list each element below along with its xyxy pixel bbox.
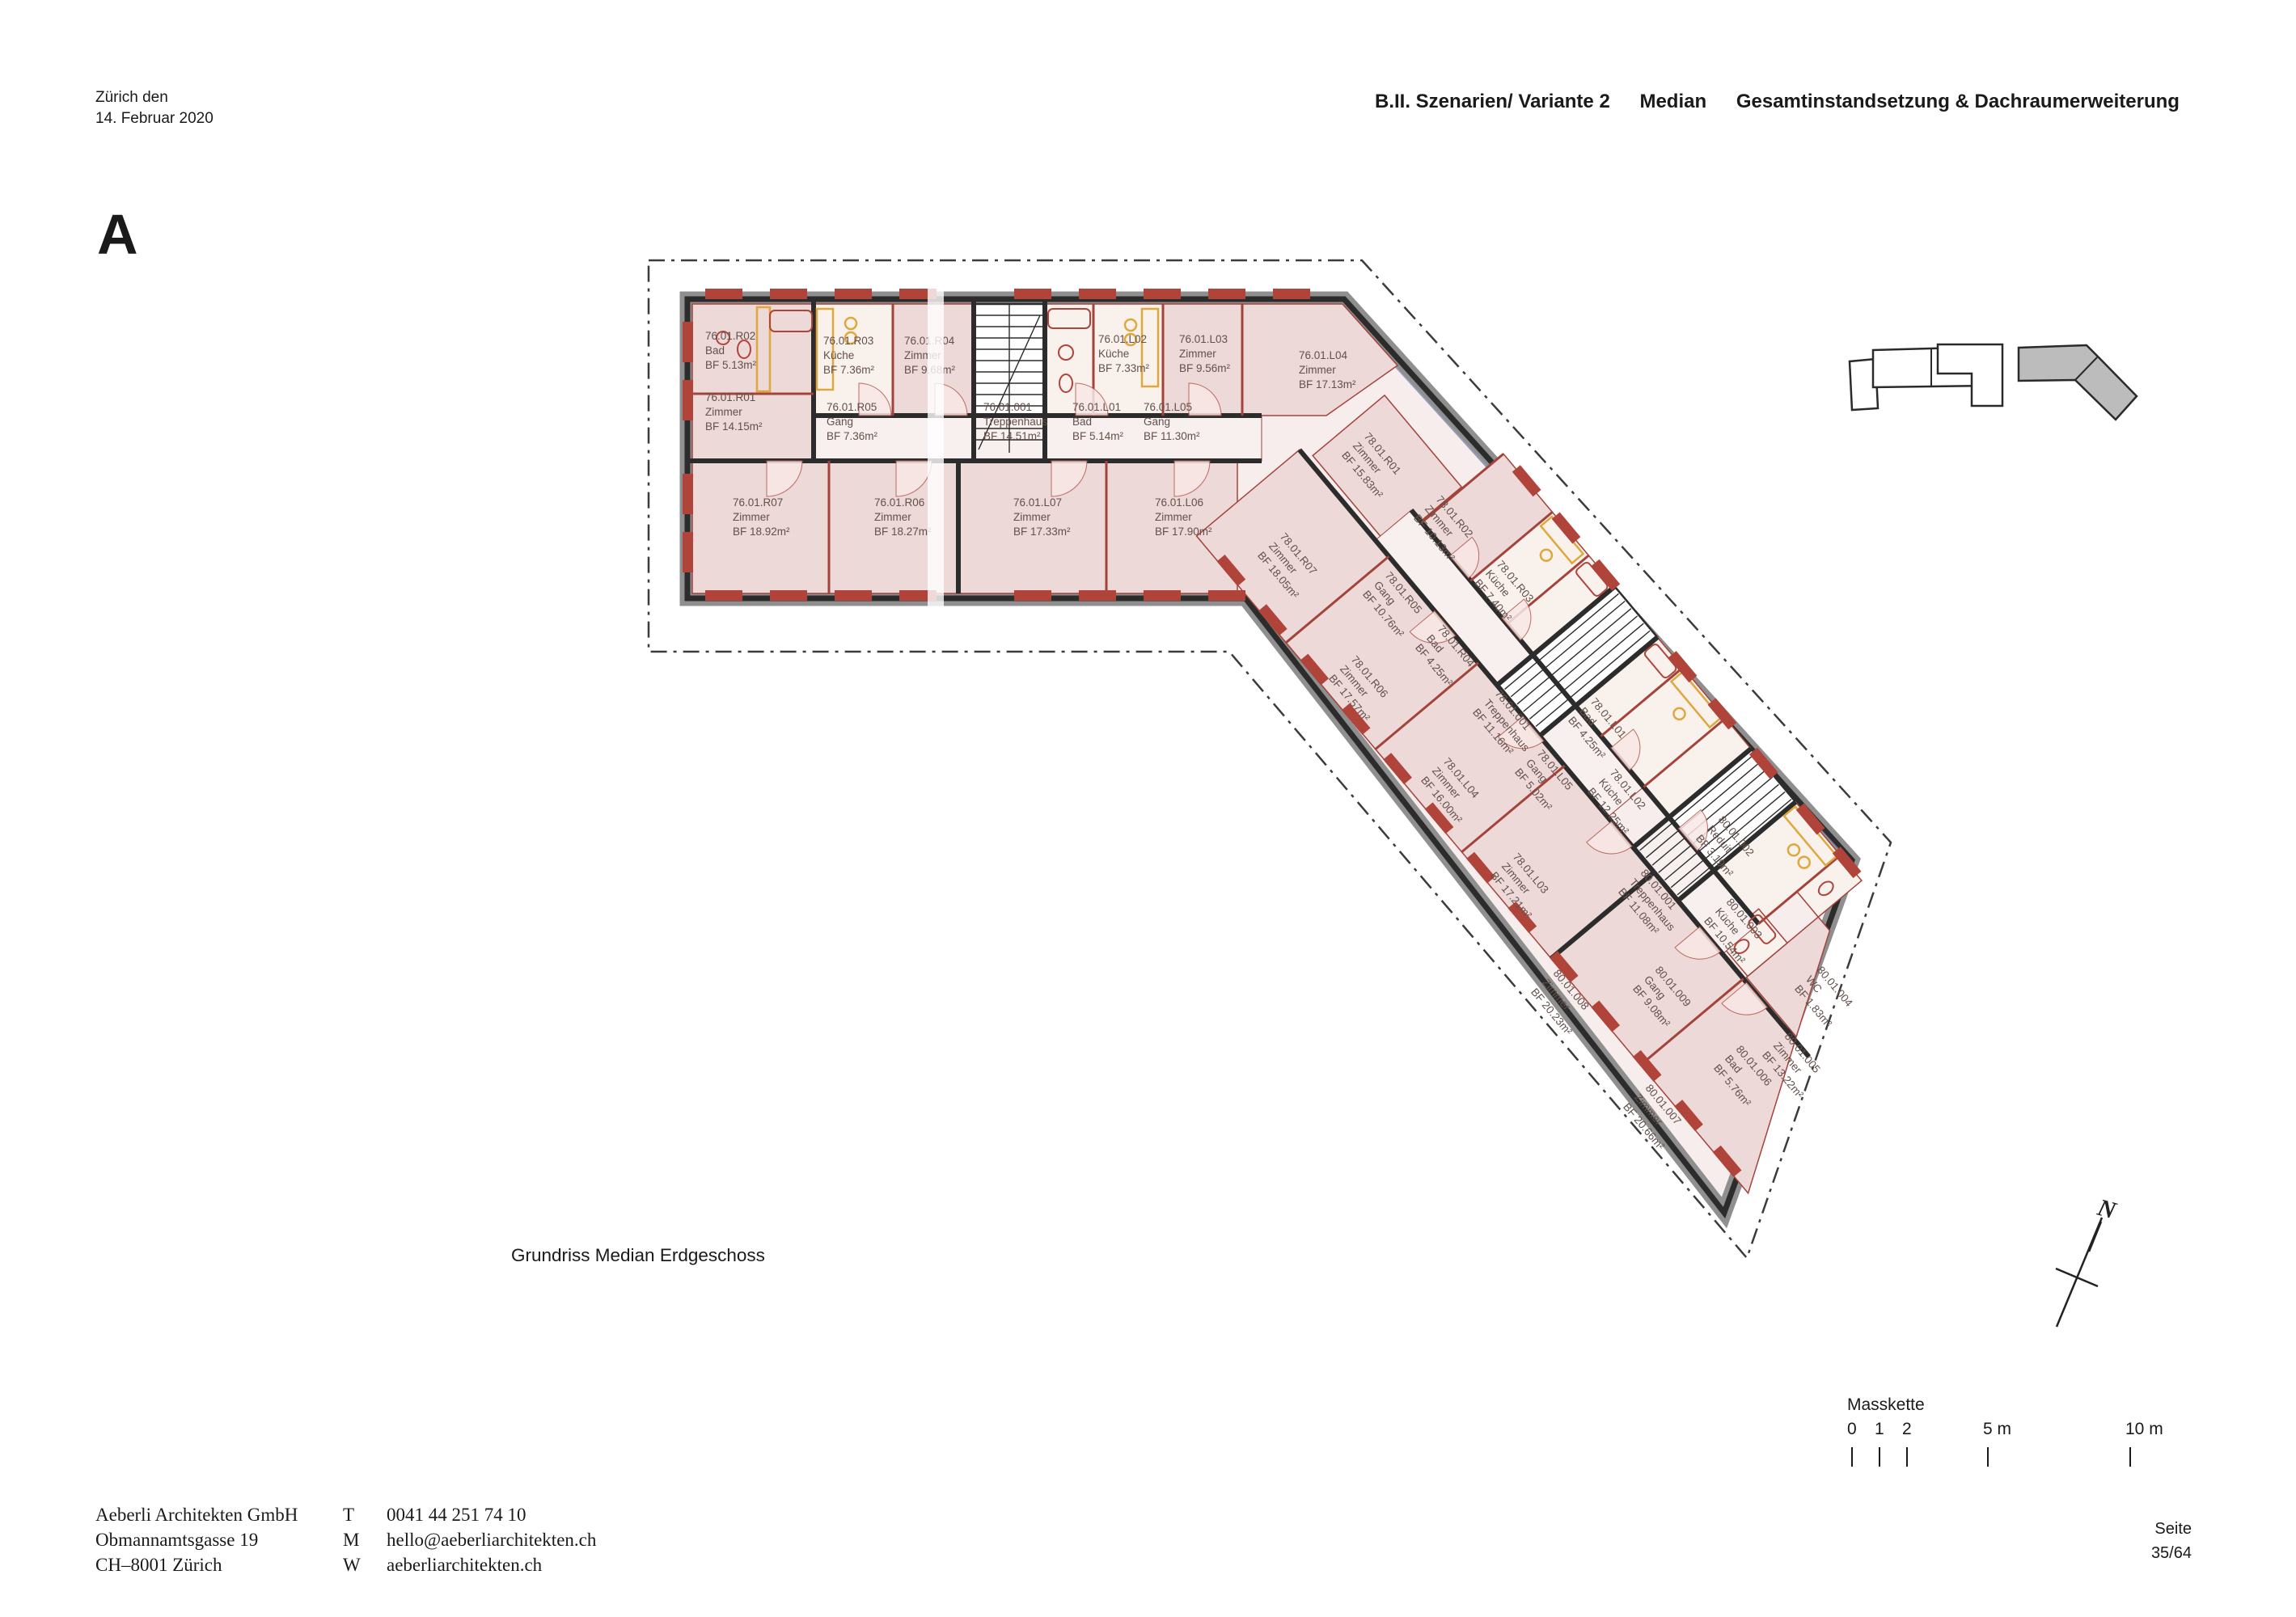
scale-tick-mark <box>1906 1447 1908 1467</box>
company-line: Obmannamtsgasse 19 <box>95 1527 298 1552</box>
scale-tick-mark <box>1851 1447 1853 1467</box>
scale-tick-label: 5 m <box>1983 1420 2011 1439</box>
company-block: Aeberli Architekten GmbHObmannamtsgasse … <box>95 1502 298 1577</box>
scale-tick-label: 0 <box>1847 1420 1857 1439</box>
contact-row: Waeberliarchitekten.ch <box>343 1552 596 1577</box>
room-code: 76.01.R05 <box>827 401 877 413</box>
scalebar: 0125 m10 m <box>0 1420 2296 1468</box>
page-label: Seite <box>2070 1517 2192 1541</box>
key-plan-shape-3 <box>2019 345 2137 420</box>
contact-key: T <box>343 1502 387 1527</box>
scale-tick-label: 1 <box>1875 1420 1884 1439</box>
room-area: BF 11.30m² <box>1144 430 1200 442</box>
contact-key: M <box>343 1527 387 1552</box>
room-area: BF 14.15m² <box>705 420 763 433</box>
room-type: Zimmer <box>1013 511 1051 523</box>
room-area: BF 17.90m² <box>1155 526 1212 538</box>
contact-block: T0041 44 251 74 10Mhello@aeberliarchitek… <box>343 1502 596 1577</box>
scale-tick-mark <box>1987 1447 1989 1467</box>
room-code: 76.01.L04 <box>1299 349 1348 361</box>
room-type: Zimmer <box>733 511 770 523</box>
room-code: 76.01.R02 <box>705 330 755 342</box>
room-type: Gang <box>827 416 853 428</box>
contact-value: aeberliarchitekten.ch <box>387 1552 542 1577</box>
room-area: BF 7.36m² <box>823 364 875 376</box>
room-code: 76.01.R03 <box>823 335 873 347</box>
scale-tick-label: 2 <box>1902 1420 1912 1439</box>
room-code: 76.01.001 <box>983 401 1032 413</box>
room-code: 76.01.R06 <box>874 496 924 509</box>
room-area: BF 18.27m² <box>874 526 932 538</box>
room-code: 76.01.R07 <box>733 496 783 509</box>
room-type: Küche <box>823 349 854 361</box>
room-area: BF 7.33m² <box>1098 362 1150 374</box>
room-area: BF 9.56m² <box>1179 362 1231 374</box>
key-plan <box>1850 344 2137 420</box>
room-type: Zimmer <box>705 406 742 418</box>
page-number-block: Seite 35/64 <box>2070 1517 2192 1565</box>
page-number: 35/64 <box>2070 1541 2192 1565</box>
plan-caption: Grundriss Median Erdgeschoss <box>511 1245 765 1266</box>
room-area: BF 5.13m² <box>705 359 757 371</box>
contact-value: hello@aeberliarchitekten.ch <box>387 1527 596 1552</box>
floor-plan: 76.01.R02BadBF 5.13m²76.01.R01ZimmerBF 1… <box>0 0 2296 1617</box>
room-code: 76.01.R01 <box>705 391 755 403</box>
room-code: 76.01.L06 <box>1155 496 1203 509</box>
contact-value: 0041 44 251 74 10 <box>387 1502 526 1527</box>
company-line: Aeberli Architekten GmbH <box>95 1502 298 1527</box>
room-code: 76.01.L05 <box>1144 401 1192 413</box>
room-type: Zimmer <box>874 511 911 523</box>
room-type: Küche <box>1098 348 1129 360</box>
contact-key: W <box>343 1552 387 1577</box>
room-area: BF 17.33m² <box>1013 526 1071 538</box>
room-area: BF 17.13m² <box>1299 378 1356 391</box>
room-code: 76.01.L03 <box>1179 333 1228 345</box>
drawing-sheet: Zürich den 14. Februar 2020 B.II. Szenar… <box>0 0 2296 1617</box>
room-type: Treppenhaus <box>983 416 1047 428</box>
north-arrow: N <box>2056 1194 2120 1327</box>
room-area: BF 18.92m² <box>733 526 790 538</box>
company-line: CH–8001 Zürich <box>95 1552 298 1577</box>
scale-tick-mark <box>2129 1447 2131 1467</box>
contact-row: T0041 44 251 74 10 <box>343 1502 596 1527</box>
north-label: N <box>2094 1194 2120 1225</box>
room-code: 76.01.L02 <box>1098 333 1147 345</box>
room-type: Bad <box>1072 416 1092 428</box>
room-type: Gang <box>1144 416 1170 428</box>
room-type: Zimmer <box>1179 348 1216 360</box>
scale-tick-mark <box>1879 1447 1880 1467</box>
room-area: BF 14.51m² <box>983 430 1041 442</box>
fold-stripe <box>928 267 944 647</box>
scale-tick-label: 10 m <box>2125 1420 2163 1439</box>
contact-row: Mhello@aeberliarchitekten.ch <box>343 1527 596 1552</box>
room-type: Zimmer <box>1299 364 1336 376</box>
scalebar-title: Masskette <box>1847 1395 1925 1415</box>
room-type: Zimmer <box>1155 511 1192 523</box>
room-area: BF 5.14m² <box>1072 430 1124 442</box>
room-code: 76.01.L01 <box>1072 401 1121 413</box>
room-area: BF 7.36m² <box>827 430 878 442</box>
room-code: 76.01.L07 <box>1013 496 1062 509</box>
room-type: Bad <box>705 344 725 357</box>
